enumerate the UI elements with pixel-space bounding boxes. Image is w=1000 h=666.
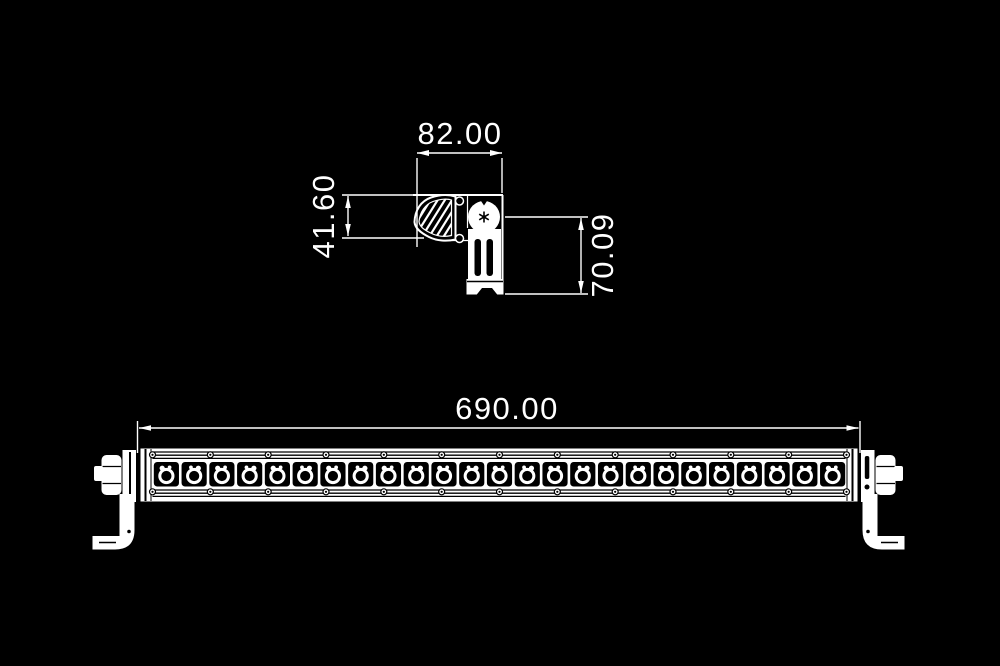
light-bar-body	[141, 449, 858, 502]
dim-bracket-70: 70.09	[505, 212, 620, 297]
mount-knob-icon	[102, 455, 122, 495]
screw-icon	[381, 452, 387, 458]
led-cell	[765, 462, 790, 487]
dim-length-label: 690.00	[455, 391, 559, 426]
screw-icon	[381, 489, 387, 495]
led-cell	[570, 462, 595, 487]
pivot-bolt-icon	[468, 200, 500, 233]
technical-drawing: 82.00 41.60 70.09	[0, 0, 1000, 666]
dim-height-label: 41.60	[306, 173, 341, 258]
screw-icon	[150, 452, 156, 458]
led-cell	[681, 462, 706, 487]
led-cell	[182, 462, 207, 487]
led-cell	[265, 462, 290, 487]
screw-icon	[265, 489, 271, 495]
screw-icon	[207, 452, 213, 458]
screw-icon	[323, 452, 329, 458]
screw-icon	[844, 489, 850, 495]
led-cell	[459, 462, 484, 487]
led-cell	[515, 462, 540, 487]
mount-bracket-right	[861, 450, 905, 550]
screw-icon	[439, 452, 445, 458]
screw-icon	[612, 489, 618, 495]
bracket-arm	[468, 229, 501, 281]
led-cell	[154, 462, 179, 487]
drawing-canvas: 82.00 41.60 70.09	[0, 0, 1000, 666]
led-cell	[431, 462, 456, 487]
housing-profile	[403, 195, 504, 296]
bracket-foot-right	[863, 494, 905, 550]
led-cell	[653, 462, 678, 487]
led-cell	[348, 462, 373, 487]
mount-knob-icon	[876, 455, 896, 495]
screw-icon	[456, 235, 464, 243]
front-view: 690.00	[93, 391, 905, 550]
screw-icon	[670, 452, 676, 458]
led-cell	[542, 462, 567, 487]
screw-icon	[554, 489, 560, 495]
led-cell	[709, 462, 734, 487]
side-view: 82.00 41.60 70.09	[306, 116, 620, 298]
screw-icon	[728, 452, 734, 458]
bracket-foot-left	[93, 494, 135, 550]
led-cell	[320, 462, 345, 487]
dim-width-label: 82.00	[417, 116, 502, 151]
screw-icon	[456, 197, 464, 205]
screw-icon	[844, 452, 850, 458]
led-cell	[237, 462, 262, 487]
mount-bracket-left	[93, 450, 137, 550]
screw-icon	[265, 452, 271, 458]
screw-icon	[554, 452, 560, 458]
led-cell	[820, 462, 845, 487]
led-cell	[376, 462, 401, 487]
screw-icon	[728, 489, 734, 495]
dim-height-41: 41.60	[306, 173, 455, 258]
dim-bracket-label: 70.09	[585, 212, 620, 297]
led-cell	[737, 462, 762, 487]
screw-icon	[670, 489, 676, 495]
led-cell	[792, 462, 817, 487]
led-cell	[487, 462, 512, 487]
screw-icon	[323, 489, 329, 495]
screw-icon	[786, 489, 792, 495]
led-cell	[404, 462, 429, 487]
led-cell	[598, 462, 623, 487]
dim-length-690: 690.00	[138, 391, 861, 453]
screw-icon	[150, 489, 156, 495]
screw-icon	[786, 452, 792, 458]
screw-icon	[612, 452, 618, 458]
led-cell	[209, 462, 234, 487]
screw-icon	[497, 489, 503, 495]
led-cells	[154, 462, 845, 487]
screw-icon	[207, 489, 213, 495]
screw-icon	[497, 452, 503, 458]
led-cell	[293, 462, 318, 487]
screw-icon	[439, 489, 445, 495]
led-cell	[626, 462, 651, 487]
